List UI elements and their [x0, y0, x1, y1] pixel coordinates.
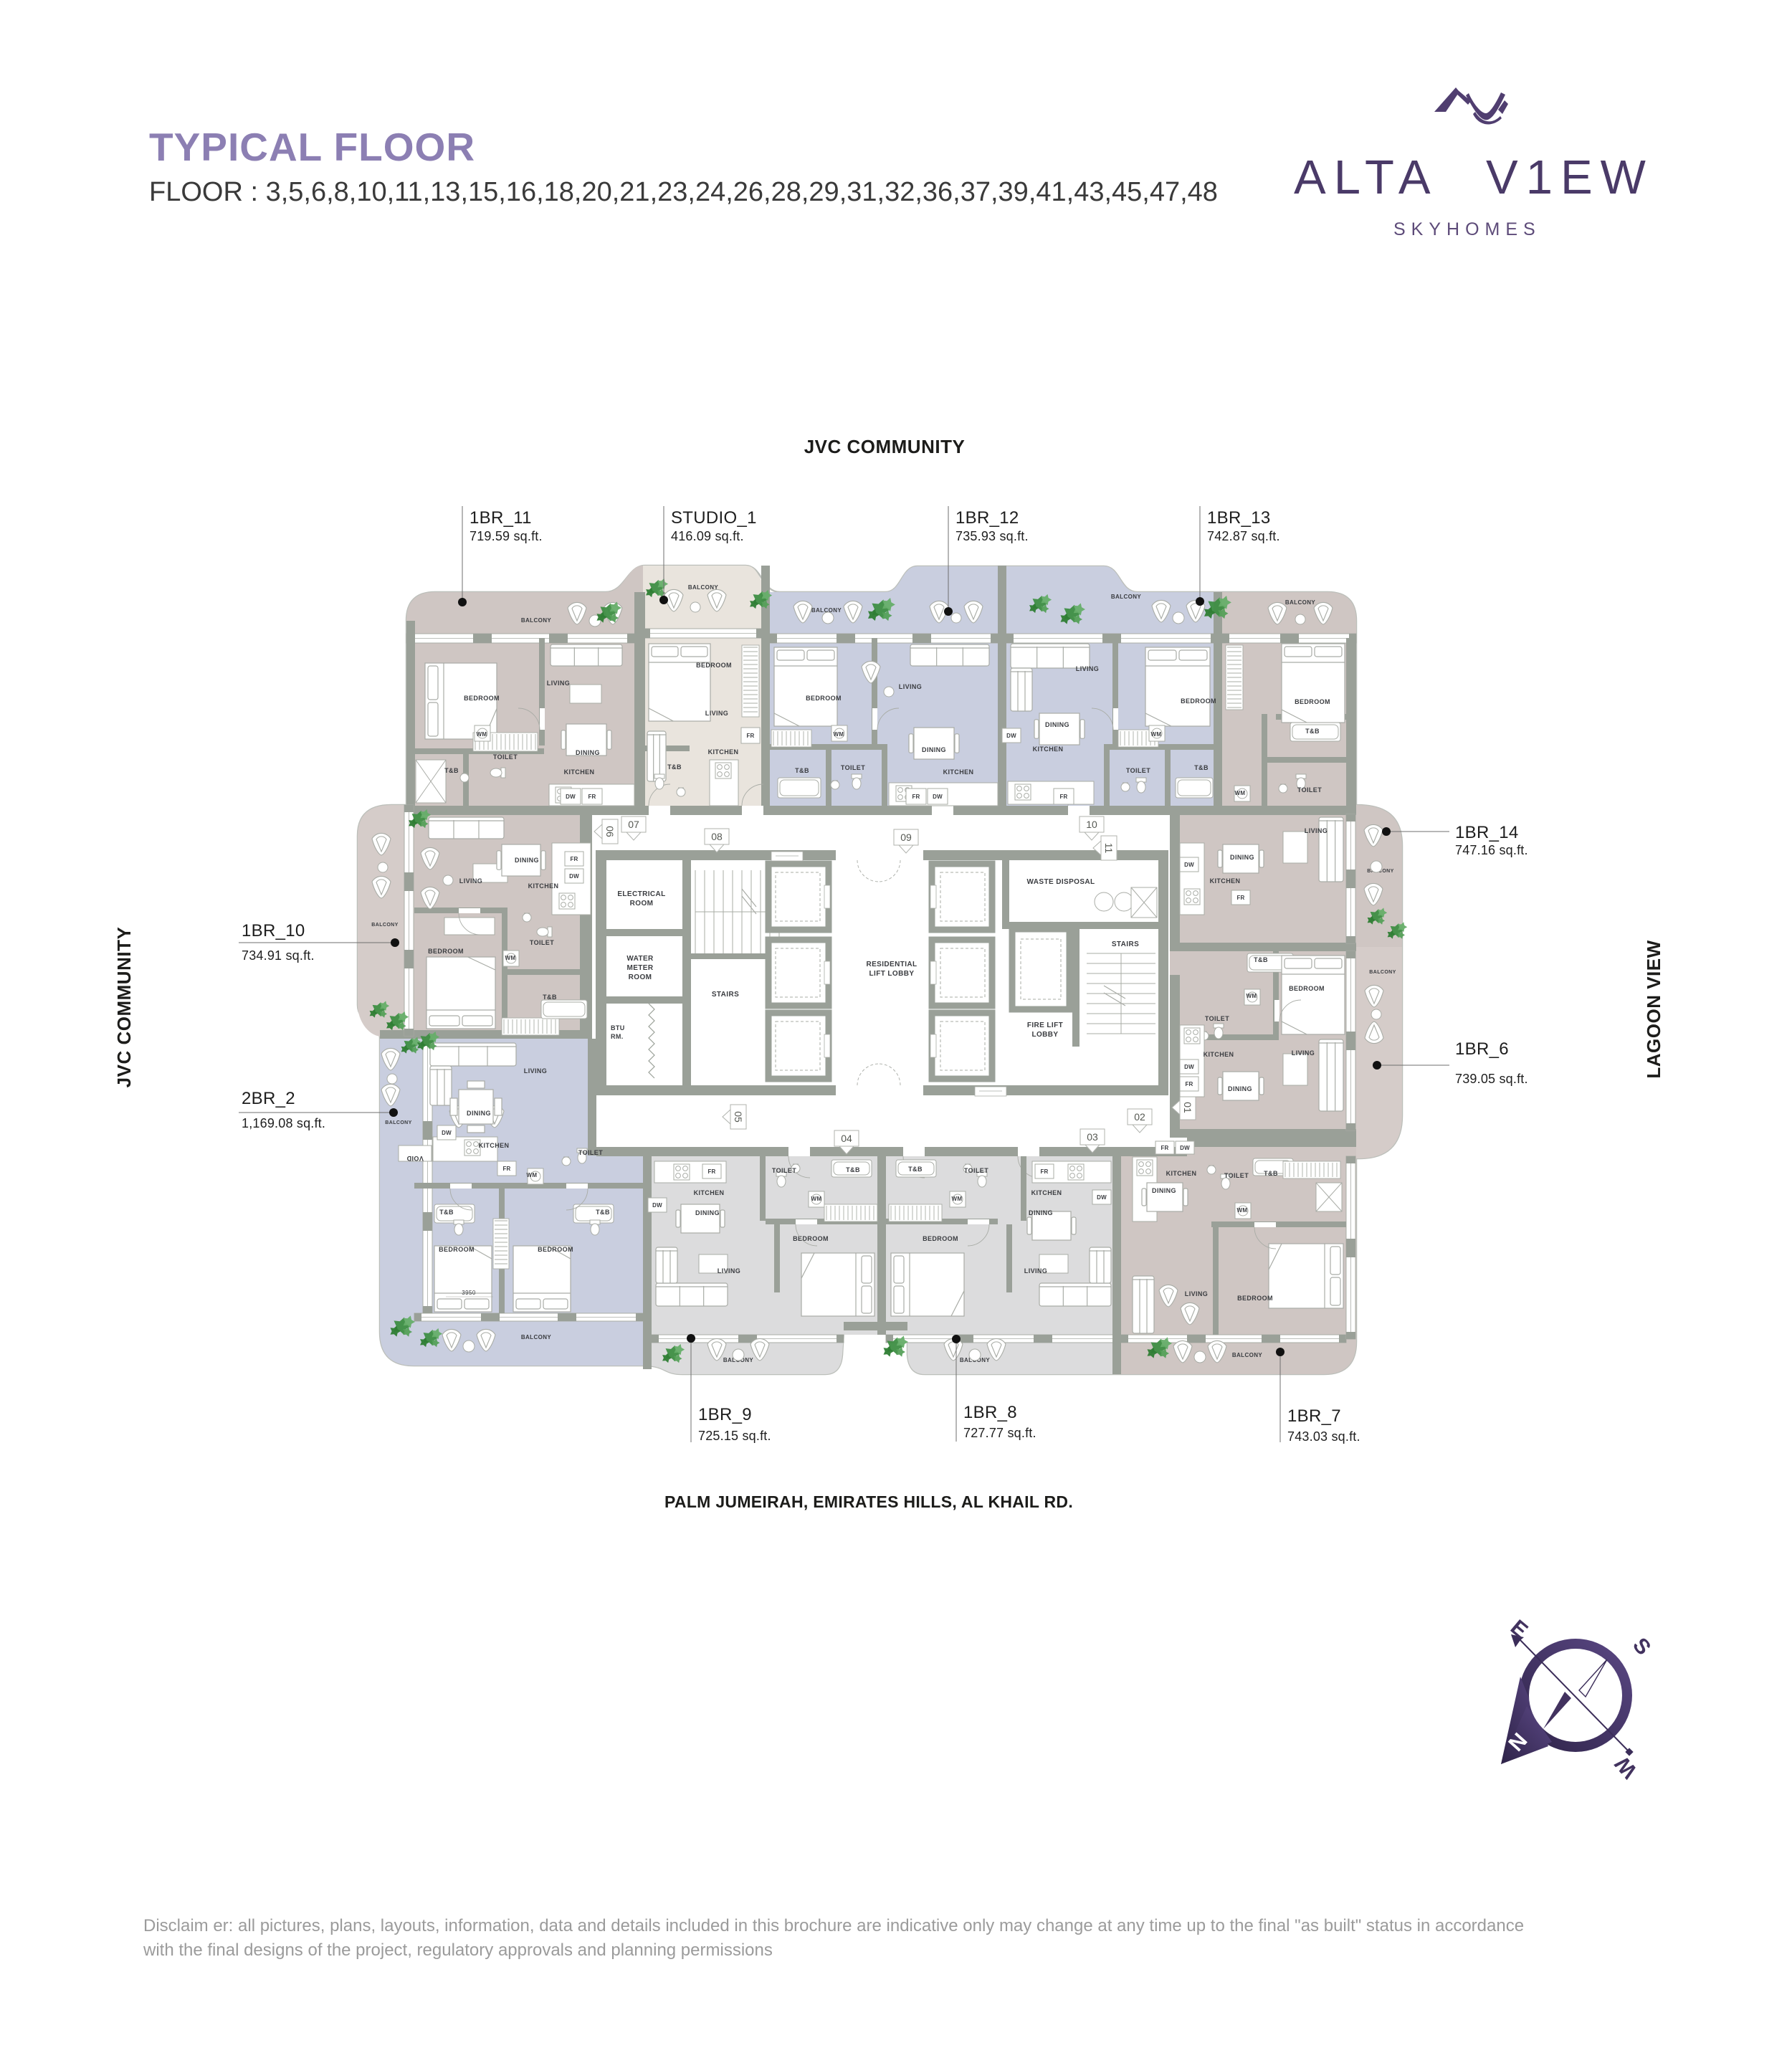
- svg-text:LIVING: LIVING: [1185, 1290, 1208, 1297]
- svg-text:BALCONY: BALCONY: [371, 923, 398, 928]
- svg-text:ROOM: ROOM: [629, 973, 652, 981]
- svg-text:1BR_12: 1BR_12: [955, 508, 1019, 528]
- svg-text:FR: FR: [912, 794, 920, 800]
- svg-text:WM: WM: [811, 1196, 821, 1202]
- svg-text:BALCONY: BALCONY: [1232, 1352, 1263, 1358]
- svg-text:LIVING: LIVING: [524, 1067, 547, 1075]
- svg-text:TOILET: TOILET: [493, 753, 518, 761]
- svg-text:TOILET: TOILET: [530, 939, 554, 946]
- svg-text:KITCHEN: KITCHEN: [564, 768, 595, 776]
- svg-text:T&B: T&B: [1264, 1170, 1278, 1177]
- svg-text:BTU: BTU: [611, 1024, 625, 1032]
- svg-text:LIVING: LIVING: [1076, 665, 1099, 672]
- svg-text:KITCHEN: KITCHEN: [1204, 1051, 1234, 1058]
- svg-text:BALCONY: BALCONY: [1369, 970, 1396, 975]
- svg-text:WM: WM: [1236, 1207, 1247, 1214]
- svg-text:LIVING: LIVING: [1024, 1267, 1047, 1275]
- svg-text:BEDROOM: BEDROOM: [1295, 698, 1330, 705]
- svg-text:1BR_9: 1BR_9: [698, 1405, 752, 1424]
- svg-text:1BR_13: 1BR_13: [1207, 508, 1271, 528]
- svg-text:BALCONY: BALCONY: [521, 617, 552, 624]
- svg-text:WM: WM: [1150, 731, 1161, 738]
- svg-text:FR: FR: [502, 1166, 510, 1172]
- svg-text:BALCONY: BALCONY: [1285, 599, 1316, 606]
- svg-text:JVC COMMUNITY: JVC COMMUNITY: [113, 927, 135, 1088]
- svg-text:06: 06: [604, 826, 616, 837]
- svg-text:743.03 sq.ft.: 743.03 sq.ft.: [1287, 1429, 1360, 1444]
- svg-text:3950: 3950: [462, 1290, 476, 1296]
- svg-text:T&B: T&B: [1305, 728, 1320, 735]
- svg-text:WM: WM: [526, 1172, 537, 1178]
- svg-text:1BR_10: 1BR_10: [242, 921, 305, 940]
- svg-text:DW: DW: [442, 1130, 452, 1136]
- svg-text:W: W: [1611, 1751, 1642, 1783]
- svg-text:416.09 sq.ft.: 416.09 sq.ft.: [671, 529, 744, 543]
- svg-text:FR: FR: [1160, 1145, 1168, 1151]
- svg-text:E: E: [1506, 1616, 1533, 1643]
- svg-text:742.87 sq.ft.: 742.87 sq.ft.: [1207, 529, 1280, 543]
- svg-text:TYPICAL FLOOR: TYPICAL FLOOR: [149, 125, 475, 169]
- svg-text:RM.: RM.: [611, 1033, 624, 1040]
- svg-text:747.16 sq.ft.: 747.16 sq.ft.: [1455, 843, 1528, 857]
- svg-text:02: 02: [1134, 1111, 1145, 1123]
- svg-text:STAIRS: STAIRS: [712, 991, 739, 999]
- svg-text:T&B: T&B: [1194, 764, 1209, 771]
- svg-text:SKYHOMES: SKYHOMES: [1393, 219, 1541, 239]
- svg-text:METER: METER: [627, 964, 654, 972]
- svg-text:FR: FR: [570, 856, 578, 862]
- svg-text:1BR_6: 1BR_6: [1455, 1039, 1509, 1059]
- svg-text:T&B: T&B: [596, 1209, 610, 1216]
- svg-text:DW: DW: [652, 1202, 662, 1209]
- svg-text:LIVING: LIVING: [1292, 1049, 1315, 1057]
- svg-text:BEDROOM: BEDROOM: [428, 948, 464, 955]
- svg-text:WM: WM: [476, 731, 487, 738]
- svg-text:DW: DW: [566, 794, 576, 800]
- svg-text:DINING: DINING: [1228, 1085, 1252, 1092]
- svg-text:BEDROOM: BEDROOM: [1181, 697, 1216, 705]
- svg-text:DINING: DINING: [695, 1209, 720, 1216]
- svg-text:V1EW: V1EW: [1486, 151, 1654, 204]
- svg-text:RESIDENTIAL: RESIDENTIAL: [866, 961, 917, 968]
- svg-text:WM: WM: [505, 955, 515, 961]
- svg-text:LIVING: LIVING: [899, 683, 922, 690]
- svg-text:727.77 sq.ft.: 727.77 sq.ft.: [963, 1426, 1036, 1440]
- svg-text:DW: DW: [1006, 733, 1016, 739]
- svg-text:KITCHEN: KITCHEN: [708, 748, 739, 756]
- svg-text:BEDROOM: BEDROOM: [923, 1235, 958, 1242]
- svg-text:TOILET: TOILET: [578, 1149, 603, 1156]
- svg-text:03: 03: [1087, 1131, 1098, 1143]
- svg-text:LIVING: LIVING: [718, 1267, 740, 1275]
- svg-text:LIVING: LIVING: [705, 710, 728, 717]
- svg-text:ELECTRICAL: ELECTRICAL: [617, 890, 665, 898]
- svg-text:1BR_8: 1BR_8: [963, 1403, 1017, 1422]
- svg-text:PALM JUMEIRAH, EMIRATES HILLS,: PALM JUMEIRAH, EMIRATES HILLS, AL KHAIL …: [664, 1492, 1073, 1511]
- svg-text:KITCHEN: KITCHEN: [1210, 877, 1241, 885]
- svg-text:BALCONY: BALCONY: [521, 1334, 552, 1340]
- svg-text:719.59 sq.ft.: 719.59 sq.ft.: [470, 529, 543, 543]
- svg-text:FR: FR: [1236, 895, 1244, 901]
- svg-text:DW: DW: [1184, 862, 1194, 868]
- svg-text:T&B: T&B: [908, 1166, 923, 1173]
- svg-text:Disclaim er: all pictures, pla: Disclaim er: all pictures, plans, layout…: [143, 1916, 1524, 1935]
- svg-text:DINING: DINING: [1029, 1209, 1053, 1216]
- svg-text:BEDROOM: BEDROOM: [696, 662, 732, 669]
- svg-text:LIVING: LIVING: [459, 877, 482, 885]
- svg-text:TOILET: TOILET: [1205, 1015, 1229, 1022]
- svg-text:DINING: DINING: [515, 857, 539, 864]
- svg-text:KITCHEN: KITCHEN: [479, 1142, 510, 1149]
- svg-text:ROOM: ROOM: [630, 900, 654, 908]
- svg-text:LIVING: LIVING: [547, 680, 570, 687]
- svg-text:T&B: T&B: [444, 767, 459, 774]
- svg-text:1BR_11: 1BR_11: [470, 508, 532, 528]
- svg-text:04: 04: [841, 1133, 852, 1144]
- svg-text:725.15 sq.ft.: 725.15 sq.ft.: [698, 1429, 771, 1443]
- svg-text:with the final designs of the: with the final designs of the project, r…: [143, 1940, 773, 1960]
- svg-text:VOID: VOID: [406, 1155, 424, 1162]
- svg-text:BEDROOM: BEDROOM: [464, 695, 500, 702]
- svg-text:DINING: DINING: [576, 749, 600, 756]
- svg-text:LOBBY: LOBBY: [1032, 1031, 1059, 1039]
- svg-text:1BR_14: 1BR_14: [1455, 823, 1519, 842]
- svg-text:WATER: WATER: [626, 955, 654, 963]
- svg-text:1BR_7: 1BR_7: [1287, 1406, 1341, 1426]
- svg-text:1,169.08 sq.ft.: 1,169.08 sq.ft.: [242, 1116, 325, 1130]
- svg-text:WM: WM: [951, 1196, 962, 1202]
- svg-text:FR: FR: [1185, 1081, 1193, 1087]
- svg-text:05: 05: [733, 1111, 744, 1123]
- svg-text:DW: DW: [569, 873, 579, 880]
- svg-text:739.05 sq.ft.: 739.05 sq.ft.: [1455, 1072, 1528, 1086]
- svg-text:09: 09: [900, 832, 912, 843]
- svg-text:TOILET: TOILET: [1297, 786, 1322, 794]
- svg-text:DINING: DINING: [922, 746, 946, 753]
- svg-text:WASTE DISPOSAL: WASTE DISPOSAL: [1026, 878, 1095, 886]
- svg-text:TOILET: TOILET: [772, 1167, 796, 1174]
- svg-text:S: S: [1628, 1634, 1655, 1660]
- svg-text:01: 01: [1182, 1102, 1193, 1113]
- svg-text:DINING: DINING: [467, 1110, 491, 1117]
- svg-text:WM: WM: [1234, 790, 1245, 796]
- svg-text:T&B: T&B: [1254, 956, 1268, 963]
- svg-text:734.91 sq.ft.: 734.91 sq.ft.: [242, 948, 315, 963]
- svg-text:BEDROOM: BEDROOM: [538, 1246, 573, 1253]
- svg-text:735.93 sq.ft.: 735.93 sq.ft.: [955, 529, 1029, 543]
- svg-text:KITCHEN: KITCHEN: [528, 882, 559, 890]
- svg-text:T&B: T&B: [543, 994, 557, 1001]
- svg-text:BEDROOM: BEDROOM: [1289, 985, 1325, 992]
- svg-text:FIRE LIFT: FIRE LIFT: [1027, 1021, 1063, 1029]
- svg-text:BALCONY: BALCONY: [1111, 594, 1142, 600]
- svg-text:JVC COMMUNITY: JVC COMMUNITY: [804, 436, 966, 457]
- svg-text:TOILET: TOILET: [1126, 767, 1150, 774]
- svg-text:DINING: DINING: [1230, 854, 1254, 861]
- svg-text:07: 07: [628, 819, 639, 830]
- svg-text:11: 11: [1103, 843, 1115, 854]
- svg-text:2BR_2: 2BR_2: [242, 1089, 295, 1108]
- svg-text:FR: FR: [1040, 1168, 1048, 1175]
- svg-text:DINING: DINING: [1152, 1187, 1176, 1194]
- svg-text:TOILET: TOILET: [841, 764, 865, 771]
- svg-text:LAGOON VIEW: LAGOON VIEW: [1643, 940, 1664, 1078]
- svg-text:DW: DW: [933, 794, 943, 800]
- svg-text:WM: WM: [833, 731, 844, 738]
- svg-text:WM: WM: [1246, 993, 1257, 999]
- svg-text:KITCHEN: KITCHEN: [1033, 746, 1064, 753]
- svg-text:BEDROOM: BEDROOM: [1237, 1295, 1273, 1302]
- svg-text:KITCHEN: KITCHEN: [1166, 1170, 1197, 1177]
- svg-text:T&B: T&B: [439, 1209, 454, 1216]
- svg-text:TOILET: TOILET: [964, 1167, 988, 1174]
- svg-text:T&B: T&B: [667, 763, 682, 771]
- svg-text:BALCONY: BALCONY: [385, 1120, 411, 1125]
- svg-text:FR: FR: [588, 794, 596, 800]
- svg-text:DW: DW: [1180, 1145, 1190, 1151]
- svg-text:BEDROOM: BEDROOM: [793, 1235, 829, 1242]
- svg-text:KITCHEN: KITCHEN: [943, 768, 974, 776]
- svg-text:TOILET: TOILET: [1224, 1172, 1249, 1179]
- svg-text:STUDIO_1: STUDIO_1: [671, 508, 757, 528]
- svg-text:FR: FR: [1059, 794, 1067, 800]
- svg-text:T&B: T&B: [846, 1166, 860, 1173]
- svg-text:BEDROOM: BEDROOM: [439, 1246, 475, 1253]
- svg-text:BEDROOM: BEDROOM: [806, 695, 842, 702]
- svg-text:KITCHEN: KITCHEN: [694, 1189, 725, 1196]
- svg-text:DINING: DINING: [1045, 721, 1069, 728]
- svg-text:DW: DW: [1184, 1064, 1194, 1070]
- svg-text:ALTA: ALTA: [1294, 151, 1439, 204]
- svg-text:FR: FR: [707, 1168, 715, 1175]
- svg-text:LIFT LOBBY: LIFT LOBBY: [869, 970, 915, 978]
- svg-text:10: 10: [1086, 819, 1097, 830]
- svg-text:DW: DW: [1097, 1194, 1107, 1201]
- svg-text:STAIRS: STAIRS: [1112, 940, 1139, 948]
- svg-text:FR: FR: [746, 733, 754, 739]
- svg-text:KITCHEN: KITCHEN: [1031, 1189, 1062, 1196]
- svg-text:FLOOR : 3,5,6,8,10,11,13,15,16: FLOOR : 3,5,6,8,10,11,13,15,16,18,20,21,…: [149, 177, 1218, 207]
- svg-text:08: 08: [711, 831, 723, 842]
- svg-text:T&B: T&B: [795, 767, 809, 774]
- svg-text:LIVING: LIVING: [1305, 827, 1328, 834]
